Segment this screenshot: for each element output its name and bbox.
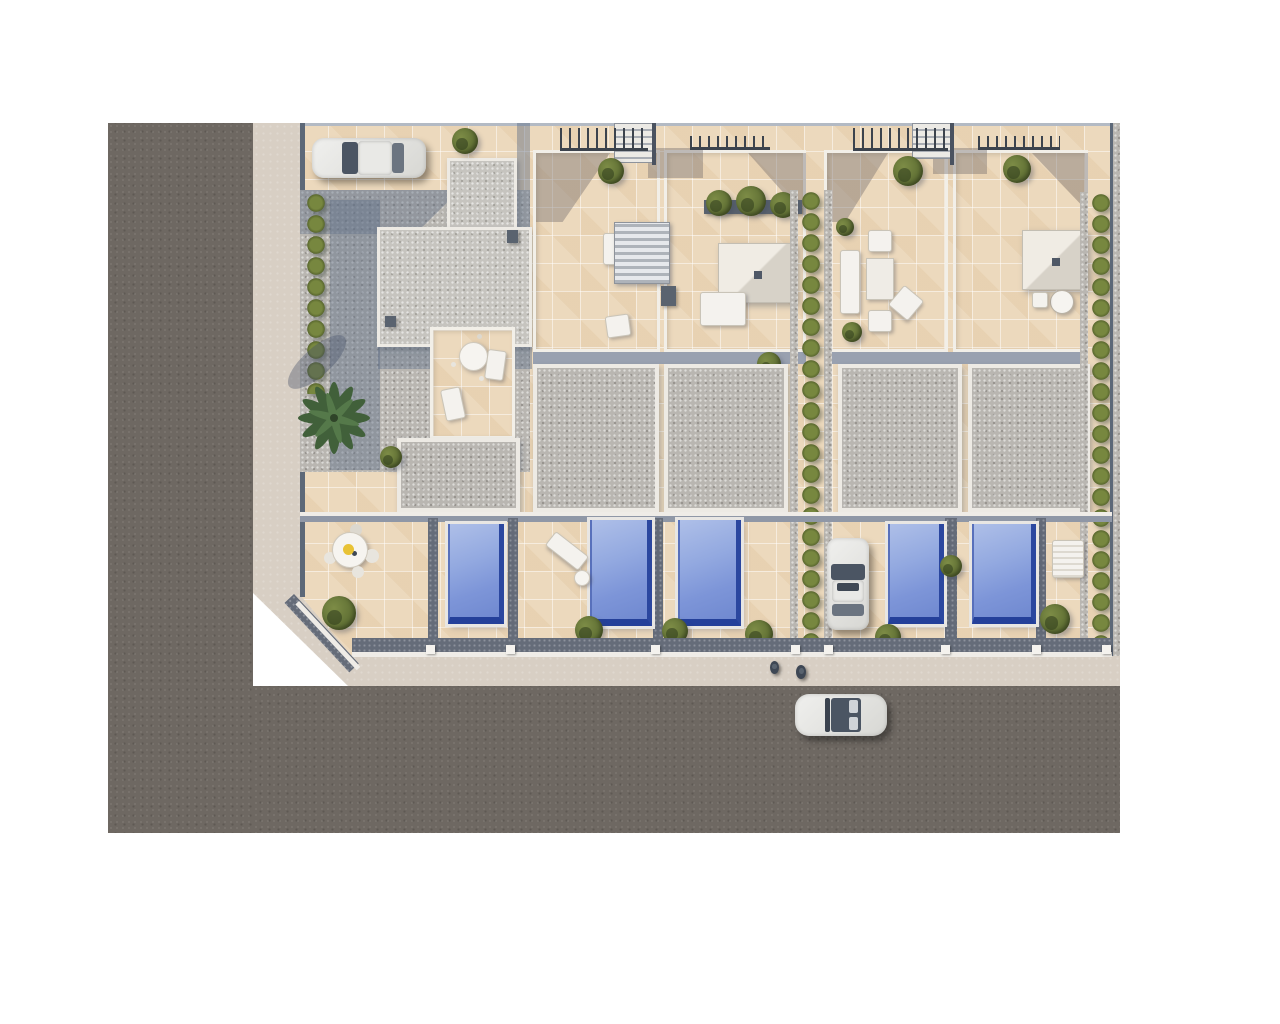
rooftop-coffee-table xyxy=(866,258,894,300)
garden-divider-wall xyxy=(945,518,957,644)
planter-shrub xyxy=(736,186,766,216)
rooftop-unit-box xyxy=(661,286,676,306)
road-left xyxy=(108,123,253,833)
shrub xyxy=(380,446,402,468)
planter-shrub xyxy=(836,218,854,236)
wall-post xyxy=(1102,645,1111,654)
rooftop-side-table xyxy=(1032,292,1048,308)
car-rear-window xyxy=(832,604,864,616)
garden-divider-wall xyxy=(508,518,518,644)
garden-plant xyxy=(1040,604,1070,634)
pedestrian xyxy=(770,661,779,674)
house-roof-unit-2 xyxy=(533,364,659,512)
car-windshield xyxy=(831,564,865,580)
path-right xyxy=(1080,192,1088,648)
garden-bottom-wall xyxy=(352,638,1112,652)
wall-post xyxy=(651,645,660,654)
swimming-pool-3 xyxy=(678,520,741,626)
convertible-car-road xyxy=(795,690,887,740)
planter-shrub xyxy=(706,190,732,216)
rooftop-sofa xyxy=(700,292,746,326)
pedestrian xyxy=(796,665,806,679)
house-roof-unit-5 xyxy=(968,364,1090,512)
swimming-pool-5 xyxy=(972,524,1036,624)
car-seat xyxy=(849,717,858,730)
stair-divider-wall xyxy=(652,123,656,165)
rooftop-armchair xyxy=(868,310,892,332)
stair-railing xyxy=(978,136,1060,150)
car-rear-window xyxy=(392,143,404,173)
plot-top-parapet xyxy=(300,123,1112,126)
garden-divider-wall xyxy=(428,518,438,644)
hedge-right-boundary xyxy=(1088,192,1112,648)
rooftop-storage-box xyxy=(605,313,632,338)
road-bottom xyxy=(253,686,1120,833)
car-roof xyxy=(358,141,392,175)
parked-car-garden xyxy=(827,538,869,630)
garden-round-table xyxy=(332,532,368,568)
stair-divider-wall xyxy=(950,123,954,165)
hedge-center xyxy=(798,190,824,648)
car-windshield xyxy=(342,142,358,174)
pergola-louvers xyxy=(614,222,670,284)
car-windshield xyxy=(825,698,830,732)
corner-annex-roof xyxy=(397,438,520,512)
stair-railing xyxy=(560,128,648,151)
corner-terrace-table xyxy=(459,342,488,371)
garden-plant xyxy=(322,596,356,630)
house-roof-unit-4 xyxy=(838,364,962,512)
car-sunroof xyxy=(837,583,859,591)
wall-post xyxy=(506,645,515,654)
wall-post xyxy=(824,645,833,654)
garden-dining-table xyxy=(1052,540,1084,578)
swimming-pool-2 xyxy=(590,520,652,626)
terrace-shadow-band xyxy=(824,352,1088,364)
stair-railing xyxy=(853,128,948,151)
path-center-left xyxy=(790,190,798,648)
planter-shrub xyxy=(893,156,923,186)
planter-shrub xyxy=(1003,155,1031,183)
garden-bottom-wall-base xyxy=(352,652,1112,657)
shrub xyxy=(452,128,478,154)
garden-divider-wall xyxy=(653,518,663,644)
house-roof-unit-3 xyxy=(664,364,788,512)
planter-shrub xyxy=(598,158,624,184)
rooftop-shower xyxy=(1050,290,1074,314)
roof-vent xyxy=(507,230,518,243)
swimming-pool-1 xyxy=(448,524,504,624)
parked-car-top xyxy=(312,134,426,182)
swimming-pool-4 xyxy=(888,524,944,624)
corner-house-roof-upper xyxy=(447,158,517,230)
wall-post xyxy=(1032,645,1041,654)
stair-railing xyxy=(690,136,770,150)
wall-post xyxy=(791,645,800,654)
rooftop-sofa xyxy=(840,250,860,314)
planter-shrub xyxy=(842,322,862,342)
right-edge-strip xyxy=(1113,123,1120,656)
garden-side-table xyxy=(574,570,590,586)
wall-post xyxy=(426,645,435,654)
corner-plot-shadow-right xyxy=(517,123,530,227)
site-plan-render xyxy=(0,0,1280,1024)
roof-vent xyxy=(385,316,396,327)
palm-tree xyxy=(288,372,380,464)
wall-post xyxy=(941,645,950,654)
terrace-shadow-wedge xyxy=(648,148,703,178)
garden-plant xyxy=(940,555,962,577)
rooftop-armchair xyxy=(868,230,892,252)
stair-bulkhead-roof xyxy=(1022,230,1088,290)
car-seat xyxy=(849,700,858,713)
